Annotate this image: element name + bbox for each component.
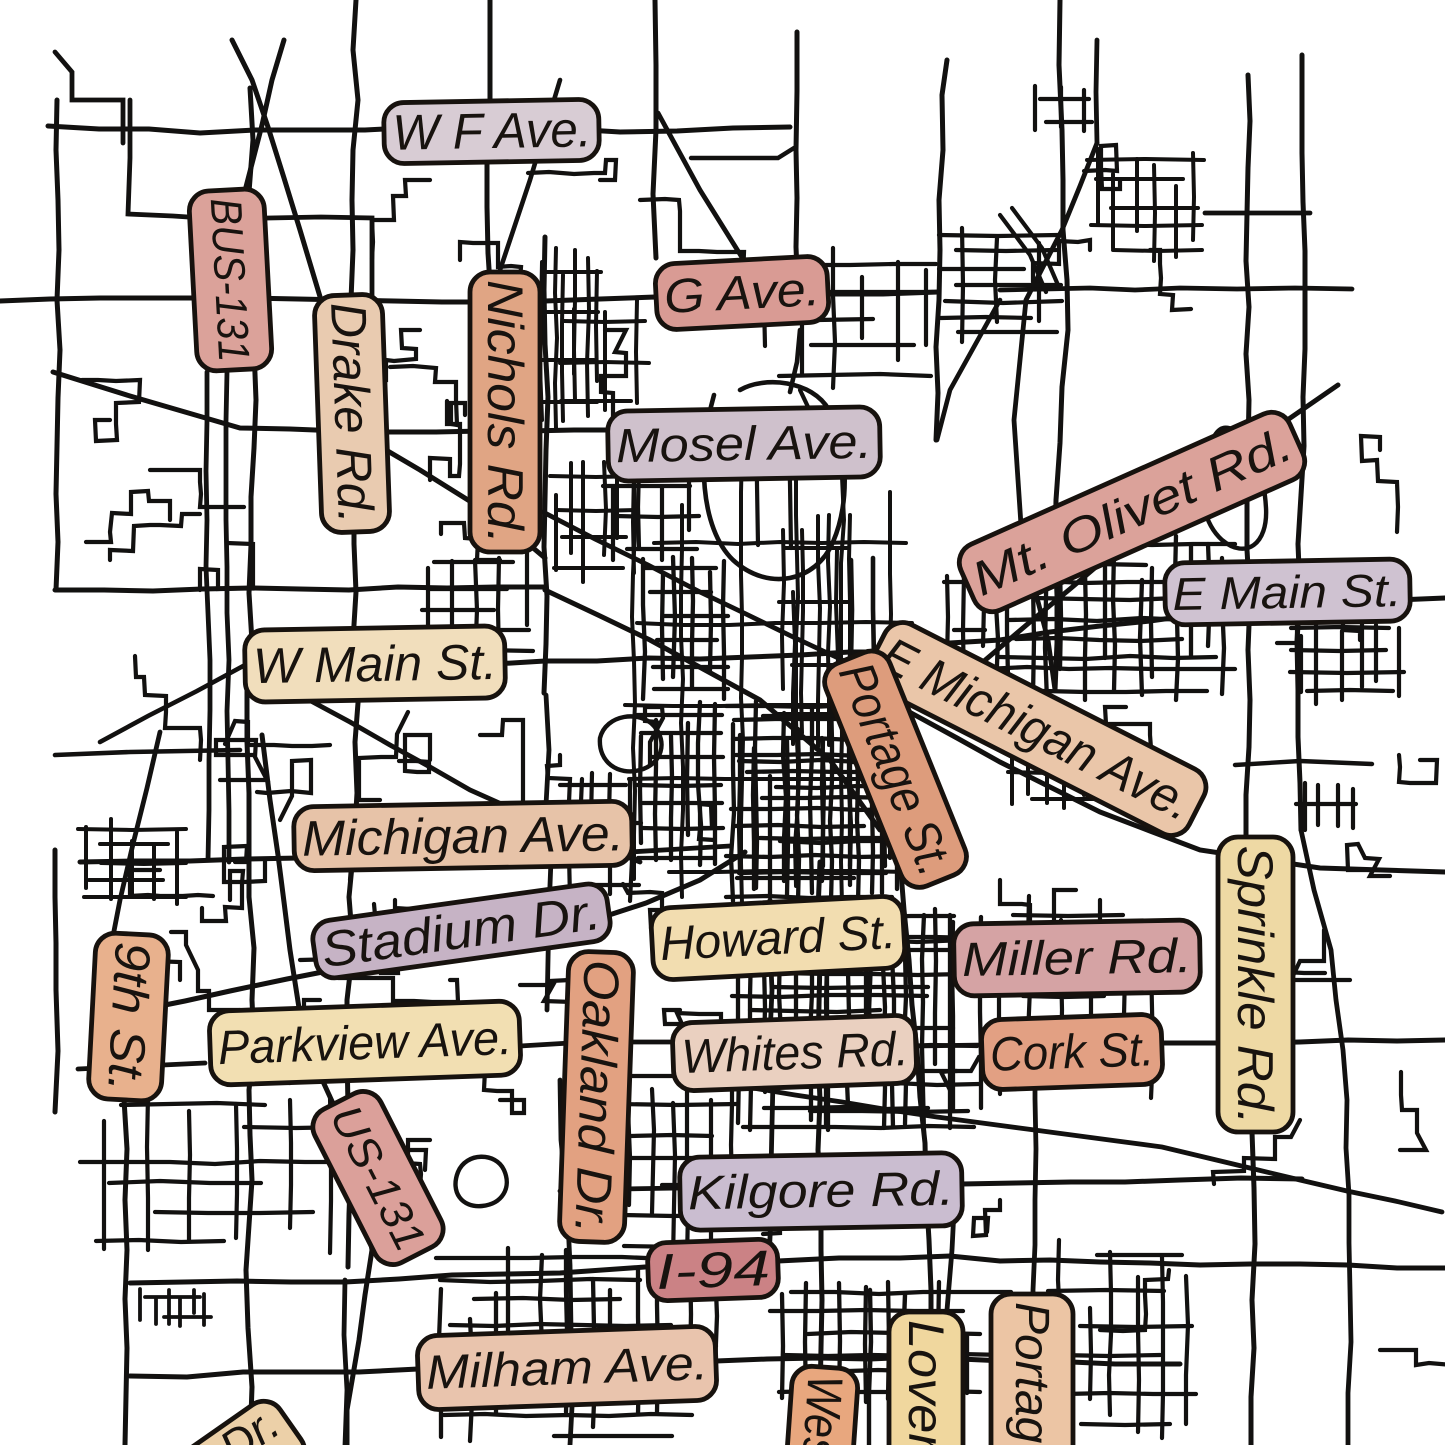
svg-text:Whites Rd.: Whites Rd.: [681, 1023, 910, 1084]
svg-text:Parkview Ave.: Parkview Ave.: [217, 1012, 513, 1075]
svg-text:Oakland Dr.: Oakland Dr.: [564, 959, 630, 1235]
svg-text:Portage Rd.: Portage Rd.: [1005, 1302, 1058, 1445]
svg-text:W F Ave.: W F Ave.: [392, 101, 592, 160]
svg-text:Miller Rd.: Miller Rd.: [962, 930, 1193, 987]
svg-text:Nichols Rd.: Nichols Rd.: [477, 280, 533, 544]
svg-text:Michigan Ave.: Michigan Ave.: [302, 805, 625, 867]
svg-text:Lovers Ln.: Lovers Ln.: [898, 1320, 954, 1445]
svg-text:Sprinkle Rd.: Sprinkle Rd.: [1227, 846, 1283, 1125]
svg-text:Drake Rd.: Drake Rd.: [320, 302, 384, 525]
svg-text:E Main St.: E Main St.: [1172, 564, 1402, 620]
svg-text:BUS-131: BUS-131: [201, 197, 259, 363]
svg-text:G Ave.: G Ave.: [663, 263, 822, 324]
svg-text:W Main St.: W Main St.: [253, 634, 498, 694]
svg-text:9th St.: 9th St.: [97, 941, 161, 1094]
svg-text:Kilgore Rd.: Kilgore Rd.: [688, 1163, 955, 1221]
svg-text:I-94: I-94: [655, 1240, 771, 1300]
svg-text:Milham Ave.: Milham Ave.: [425, 1337, 709, 1400]
svg-text:Mosel Ave.: Mosel Ave.: [616, 416, 873, 473]
svg-text:Cork St.: Cork St.: [989, 1023, 1155, 1082]
